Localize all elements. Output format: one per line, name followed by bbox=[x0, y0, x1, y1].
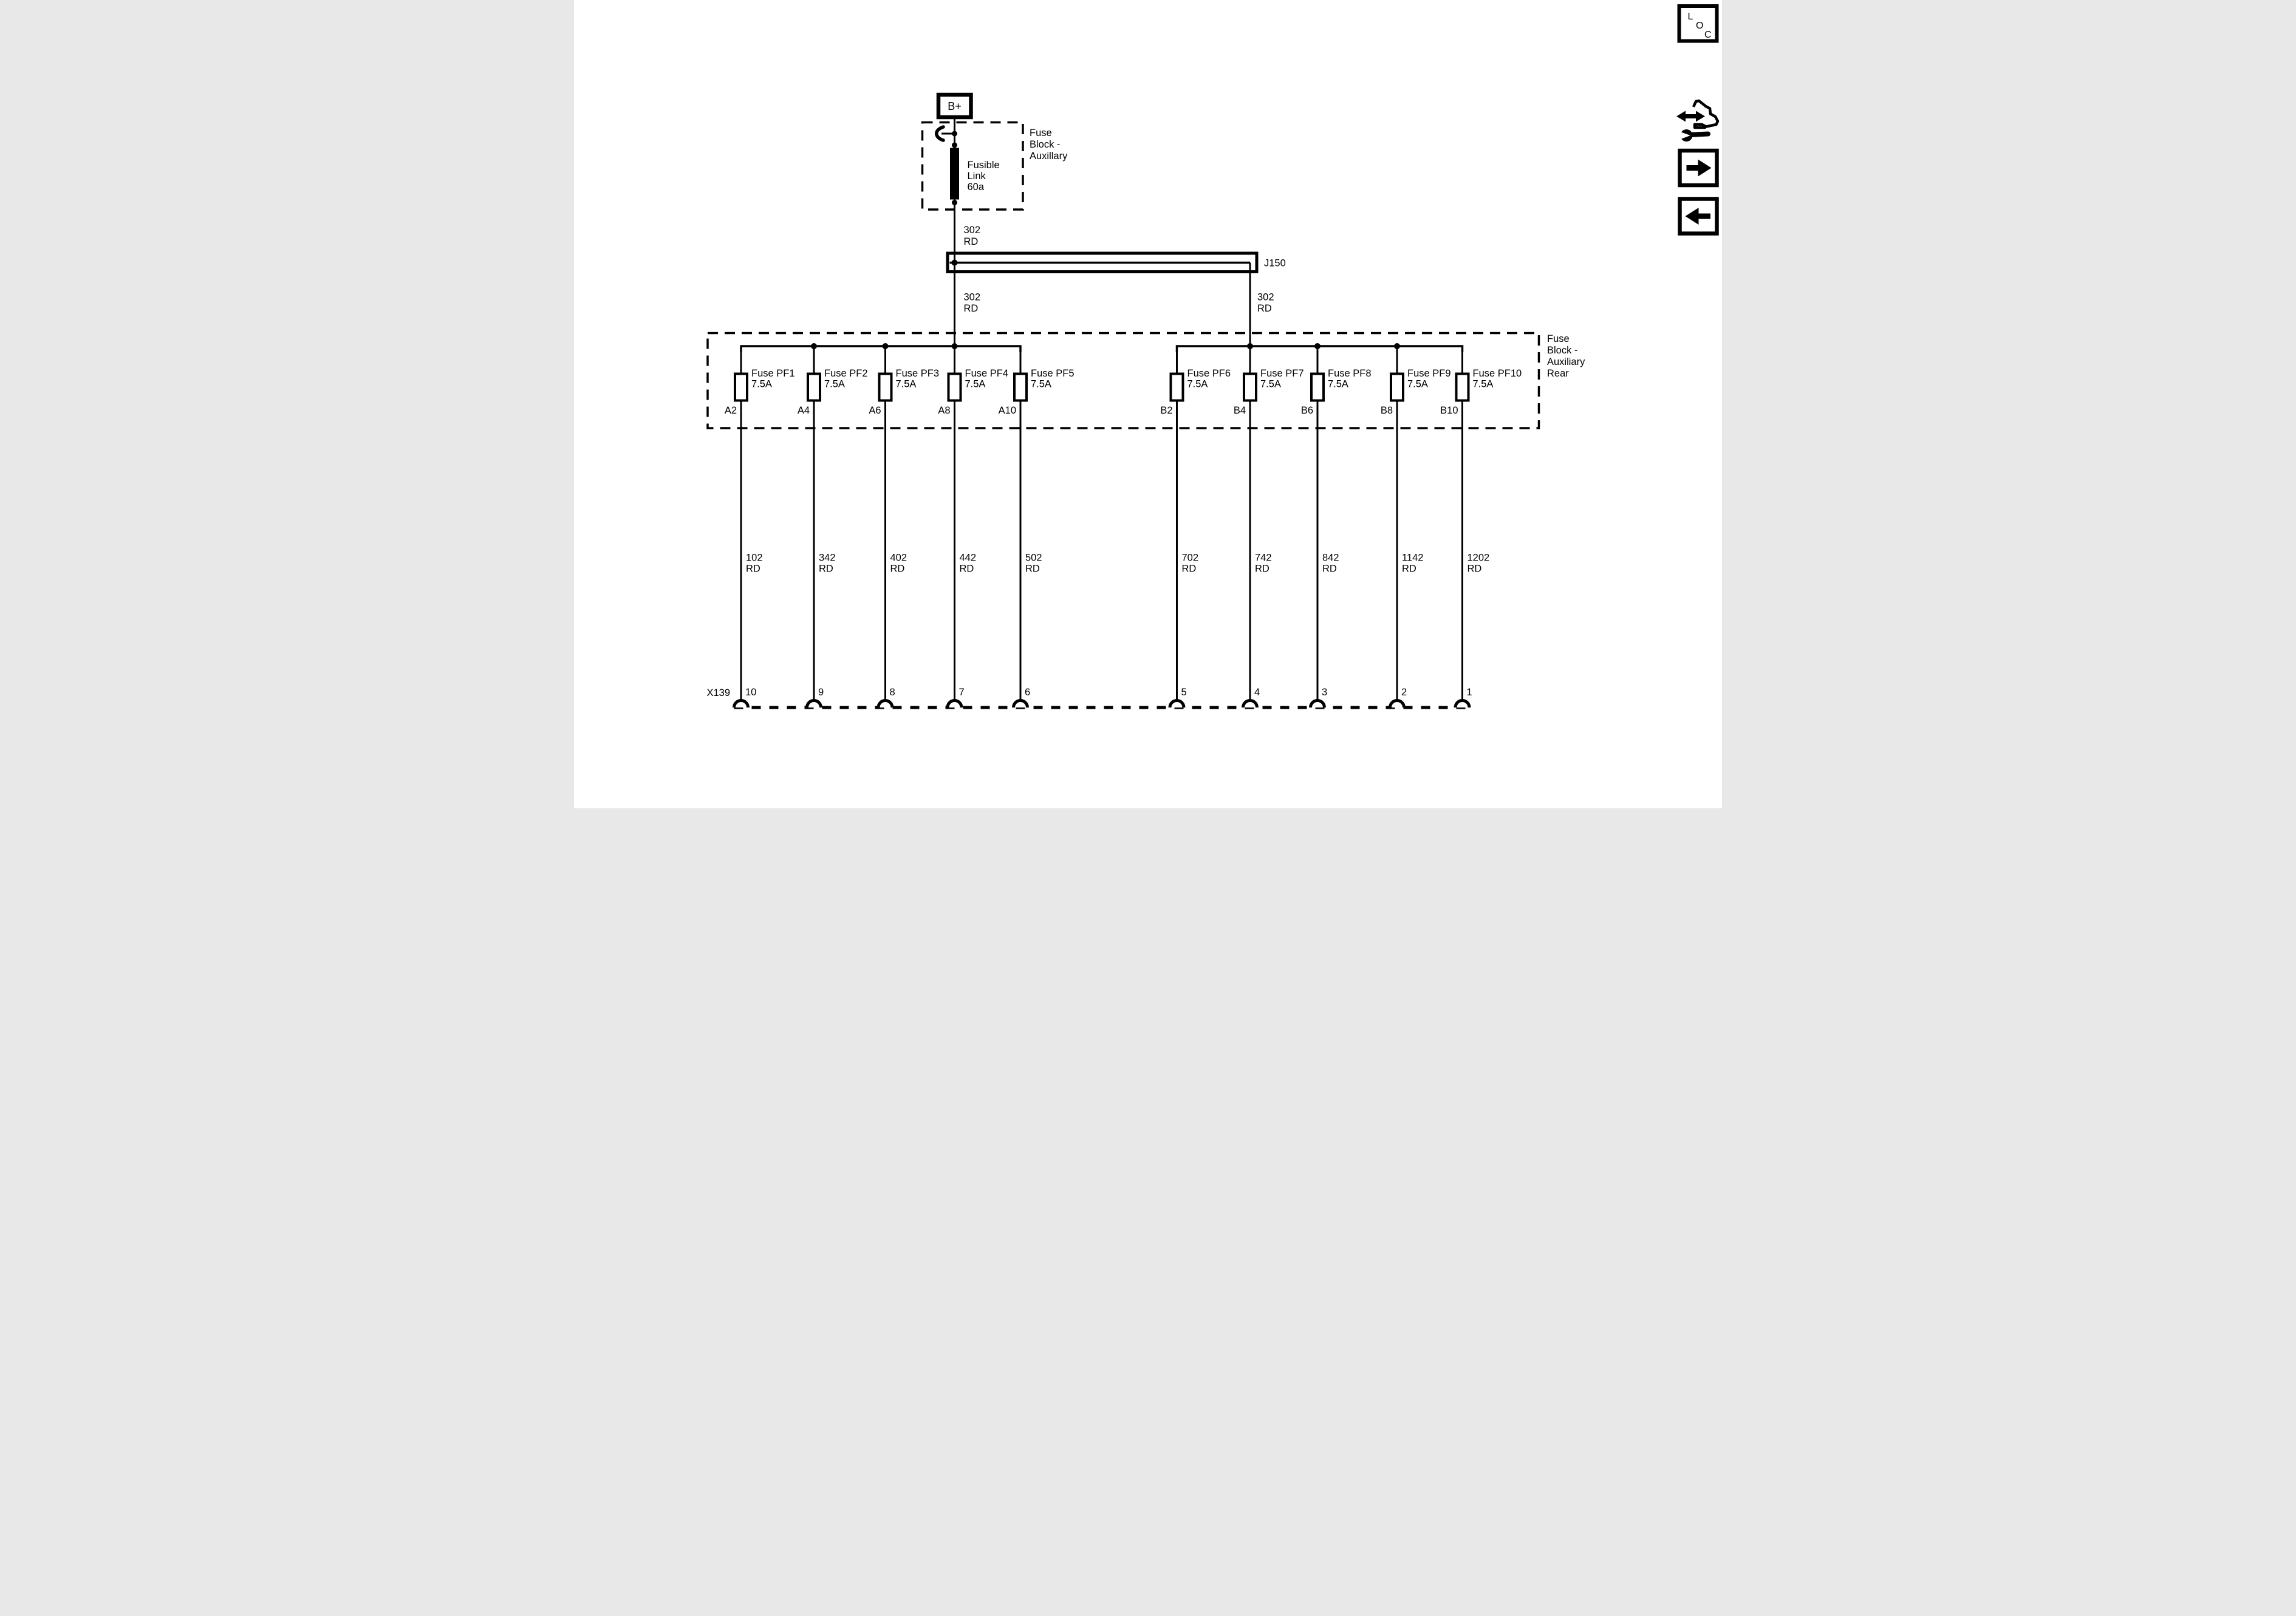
fuse-circuit: Fuse PF57.5AA10502RD6 bbox=[999, 346, 1075, 707]
fuse-symbol bbox=[1171, 374, 1183, 401]
junction-dot bbox=[952, 260, 958, 266]
fuse-symbol bbox=[735, 374, 747, 401]
connector-pin-terminal bbox=[734, 701, 748, 708]
fuse-name-label: Fuse PF10 bbox=[1473, 368, 1522, 379]
fuse-name-label: Fuse PF7 bbox=[1260, 368, 1304, 379]
fuse-pin-label: A2 bbox=[725, 405, 737, 416]
wire-color-label: RD bbox=[960, 564, 974, 574]
fuse-circuits: Fuse PF17.5AA2102RD10Fuse PF27.5AA4342RD… bbox=[725, 346, 1522, 707]
connector-pin-number: 3 bbox=[1322, 687, 1327, 698]
fuse-name-label: Fuse PF5 bbox=[1031, 368, 1075, 379]
wrench-icon bbox=[1678, 129, 1708, 141]
loc-letter-c: C bbox=[1704, 30, 1712, 40]
fuse-symbol bbox=[880, 374, 892, 401]
fuse-circuit: Fuse PF27.5AA4342RD9 bbox=[798, 346, 868, 707]
connector-pin-number: 10 bbox=[745, 687, 756, 698]
fuse-rating-label: 7.5A bbox=[1473, 379, 1494, 390]
fusible-link-label: Fusible Link 60a bbox=[968, 160, 1000, 193]
left-feed-label: 302 RD bbox=[964, 292, 981, 315]
svg-text:Auxillary: Auxillary bbox=[1030, 151, 1068, 162]
battery-terminal-label: B+ bbox=[948, 100, 962, 112]
fuse-name-label: Fuse PF4 bbox=[965, 368, 1009, 379]
fuse-symbol bbox=[1014, 374, 1027, 401]
connector-pin-number: 1 bbox=[1467, 687, 1472, 698]
wire-color-label: RD bbox=[890, 564, 905, 574]
wire-circuit-label: 1202 bbox=[1467, 553, 1490, 564]
next-arrow-button[interactable] bbox=[1680, 151, 1717, 185]
svg-text:Rear: Rear bbox=[1547, 368, 1569, 379]
connector-label: X139 bbox=[707, 687, 731, 698]
fuse-symbol bbox=[1457, 374, 1469, 401]
connector-pin-terminal bbox=[948, 701, 962, 708]
back-arrow-button[interactable] bbox=[1680, 199, 1717, 234]
svg-text:Auxiliary: Auxiliary bbox=[1547, 356, 1585, 367]
fuse-circuit: Fuse PF47.5AA8442RD7 bbox=[938, 346, 1008, 707]
svg-text:60a: 60a bbox=[968, 182, 985, 193]
svg-text:RD: RD bbox=[1257, 303, 1272, 314]
fuse-rating-label: 7.5A bbox=[824, 379, 845, 390]
fuse-pin-label: B4 bbox=[1234, 405, 1246, 416]
fuse-rating-label: 7.5A bbox=[896, 379, 917, 390]
wire-circuit-label: 742 bbox=[1255, 553, 1272, 564]
wire-circuit-label: 702 bbox=[1182, 553, 1199, 564]
fuse-pin-label: A10 bbox=[999, 405, 1016, 416]
wire-color-label: RD bbox=[1182, 564, 1197, 574]
svg-text:302: 302 bbox=[964, 225, 981, 236]
wire-color-label: RD bbox=[1402, 564, 1416, 574]
connector-pin-number: 6 bbox=[1025, 687, 1030, 698]
svg-text:Block -: Block - bbox=[1547, 345, 1577, 356]
schematic-page: Fuse PF17.5AA2102RD10Fuse PF27.5AA4342RD… bbox=[574, 0, 1722, 808]
wire-color-label: RD bbox=[746, 564, 760, 574]
fuse-name-label: Fuse PF3 bbox=[896, 368, 940, 379]
wire-circuit-label: 502 bbox=[1025, 553, 1042, 564]
fuse-symbol bbox=[949, 374, 961, 401]
wire-circuit-label: 102 bbox=[746, 553, 763, 564]
fuse-pin-label: A6 bbox=[869, 405, 881, 416]
connector-pin-number: 4 bbox=[1254, 687, 1260, 698]
fuse-name-label: Fuse PF9 bbox=[1407, 368, 1451, 379]
wire-circuit-label: 402 bbox=[890, 553, 907, 564]
connector-pin-terminal bbox=[807, 701, 821, 708]
svg-text:Fuse: Fuse bbox=[1030, 128, 1052, 138]
loc-letter-o: O bbox=[1696, 21, 1703, 31]
fuse-symbol bbox=[1244, 374, 1256, 401]
wire-color-label: RD bbox=[819, 564, 833, 574]
fusible-link-symbol bbox=[937, 127, 959, 205]
fuse-block-bus-left bbox=[741, 346, 1020, 352]
wire-circuit-label: 1142 bbox=[1402, 553, 1423, 564]
svg-text:Fusible: Fusible bbox=[968, 160, 1000, 171]
fuse-rating-label: 7.5A bbox=[751, 379, 772, 390]
fuse-symbol bbox=[1311, 374, 1324, 401]
fuse-circuit: Fuse PF87.5AB6842RD3 bbox=[1301, 346, 1372, 707]
fuse-circuit: Fuse PF37.5AA6402RD8 bbox=[869, 346, 939, 707]
fuse-rating-label: 7.5A bbox=[1187, 379, 1208, 390]
fuse-rating-label: 7.5A bbox=[1328, 379, 1348, 390]
fuse-pin-label: A4 bbox=[798, 405, 810, 416]
connector-pin-terminal bbox=[1243, 701, 1257, 708]
loc-button[interactable]: L O C bbox=[1679, 6, 1717, 41]
fuse-symbol bbox=[808, 374, 820, 401]
upper-block-label: Fuse Block - Auxillary bbox=[1030, 128, 1068, 162]
fuse-block-label: Fuse Block - Auxiliary Rear bbox=[1547, 333, 1585, 379]
connector-pin-terminal bbox=[1390, 701, 1404, 708]
fusible-link-body bbox=[950, 148, 959, 200]
fuse-rating-label: 7.5A bbox=[965, 379, 986, 390]
wire-color-label: RD bbox=[1025, 564, 1040, 574]
svg-text:Fuse: Fuse bbox=[1547, 333, 1570, 344]
wire-color-label: RD bbox=[1322, 564, 1337, 574]
fuse-circuit: Fuse PF67.5AB2702RD5 bbox=[1160, 346, 1231, 707]
connector-pin-terminal bbox=[878, 701, 892, 708]
wire-color-label: RD bbox=[1467, 564, 1482, 574]
fuse-pin-label: B10 bbox=[1440, 405, 1458, 416]
fuse-rating-label: 7.5A bbox=[1407, 379, 1428, 390]
right-feed-label: 302 RD bbox=[1257, 292, 1274, 315]
junction-label: J150 bbox=[1264, 258, 1286, 269]
wire-circuit-label: 842 bbox=[1322, 553, 1339, 564]
connector-pin-number: 9 bbox=[818, 687, 824, 698]
svg-text:302: 302 bbox=[964, 292, 981, 303]
connector-pin-number: 2 bbox=[1401, 687, 1407, 698]
connector-pin-number: 8 bbox=[890, 687, 895, 698]
wire-circuit-label: 342 bbox=[819, 553, 836, 564]
fuse-pin-label: B6 bbox=[1301, 405, 1313, 416]
fuse-name-label: Fuse PF2 bbox=[824, 368, 868, 379]
svg-text:RD: RD bbox=[964, 303, 979, 314]
double-arrow-icon bbox=[1676, 111, 1705, 122]
service-info-icon[interactable] bbox=[1676, 101, 1718, 141]
fuse-pin-label: B8 bbox=[1381, 405, 1393, 416]
fuse-rating-label: 7.5A bbox=[1260, 379, 1281, 390]
fuse-circuit: Fuse PF97.5AB81142RD2 bbox=[1381, 346, 1451, 707]
wire-color-label: RD bbox=[1255, 564, 1269, 574]
battery-terminal: B+ bbox=[938, 95, 971, 117]
svg-text:Link: Link bbox=[968, 171, 986, 182]
fuse-pin-label: A8 bbox=[938, 405, 950, 416]
fuse-circuit: Fuse PF77.5AB4742RD4 bbox=[1234, 346, 1304, 707]
feed-wire-label: 302 RD bbox=[964, 225, 981, 247]
connector-pin-terminal bbox=[1014, 701, 1028, 708]
wiring-diagram: Fuse PF17.5AA2102RD10Fuse PF27.5AA4342RD… bbox=[574, 0, 1722, 808]
wire-circuit-label: 442 bbox=[960, 553, 977, 564]
connector-pin-number: 7 bbox=[959, 687, 965, 698]
fuse-pin-label: B2 bbox=[1160, 405, 1172, 416]
fuse-name-label: Fuse PF1 bbox=[751, 368, 795, 379]
fuse-circuit: Fuse PF17.5AA2102RD10 bbox=[725, 346, 795, 707]
fuse-name-label: Fuse PF6 bbox=[1187, 368, 1231, 379]
fuse-symbol bbox=[1391, 374, 1403, 401]
connector-pin-terminal bbox=[1311, 701, 1325, 708]
fuse-rating-label: 7.5A bbox=[1031, 379, 1051, 390]
connector-pin-number: 5 bbox=[1181, 687, 1187, 698]
connector-pin-terminal bbox=[1455, 701, 1469, 708]
svg-text:RD: RD bbox=[964, 236, 979, 247]
svg-text:Block -: Block - bbox=[1030, 139, 1060, 150]
svg-text:302: 302 bbox=[1257, 292, 1274, 303]
connector-pin-terminal bbox=[1170, 701, 1184, 708]
fuse-circuit: Fuse PF107.5AB101202RD1 bbox=[1440, 346, 1522, 707]
loc-letter-l: L bbox=[1688, 12, 1693, 22]
fuse-name-label: Fuse PF8 bbox=[1328, 368, 1372, 379]
